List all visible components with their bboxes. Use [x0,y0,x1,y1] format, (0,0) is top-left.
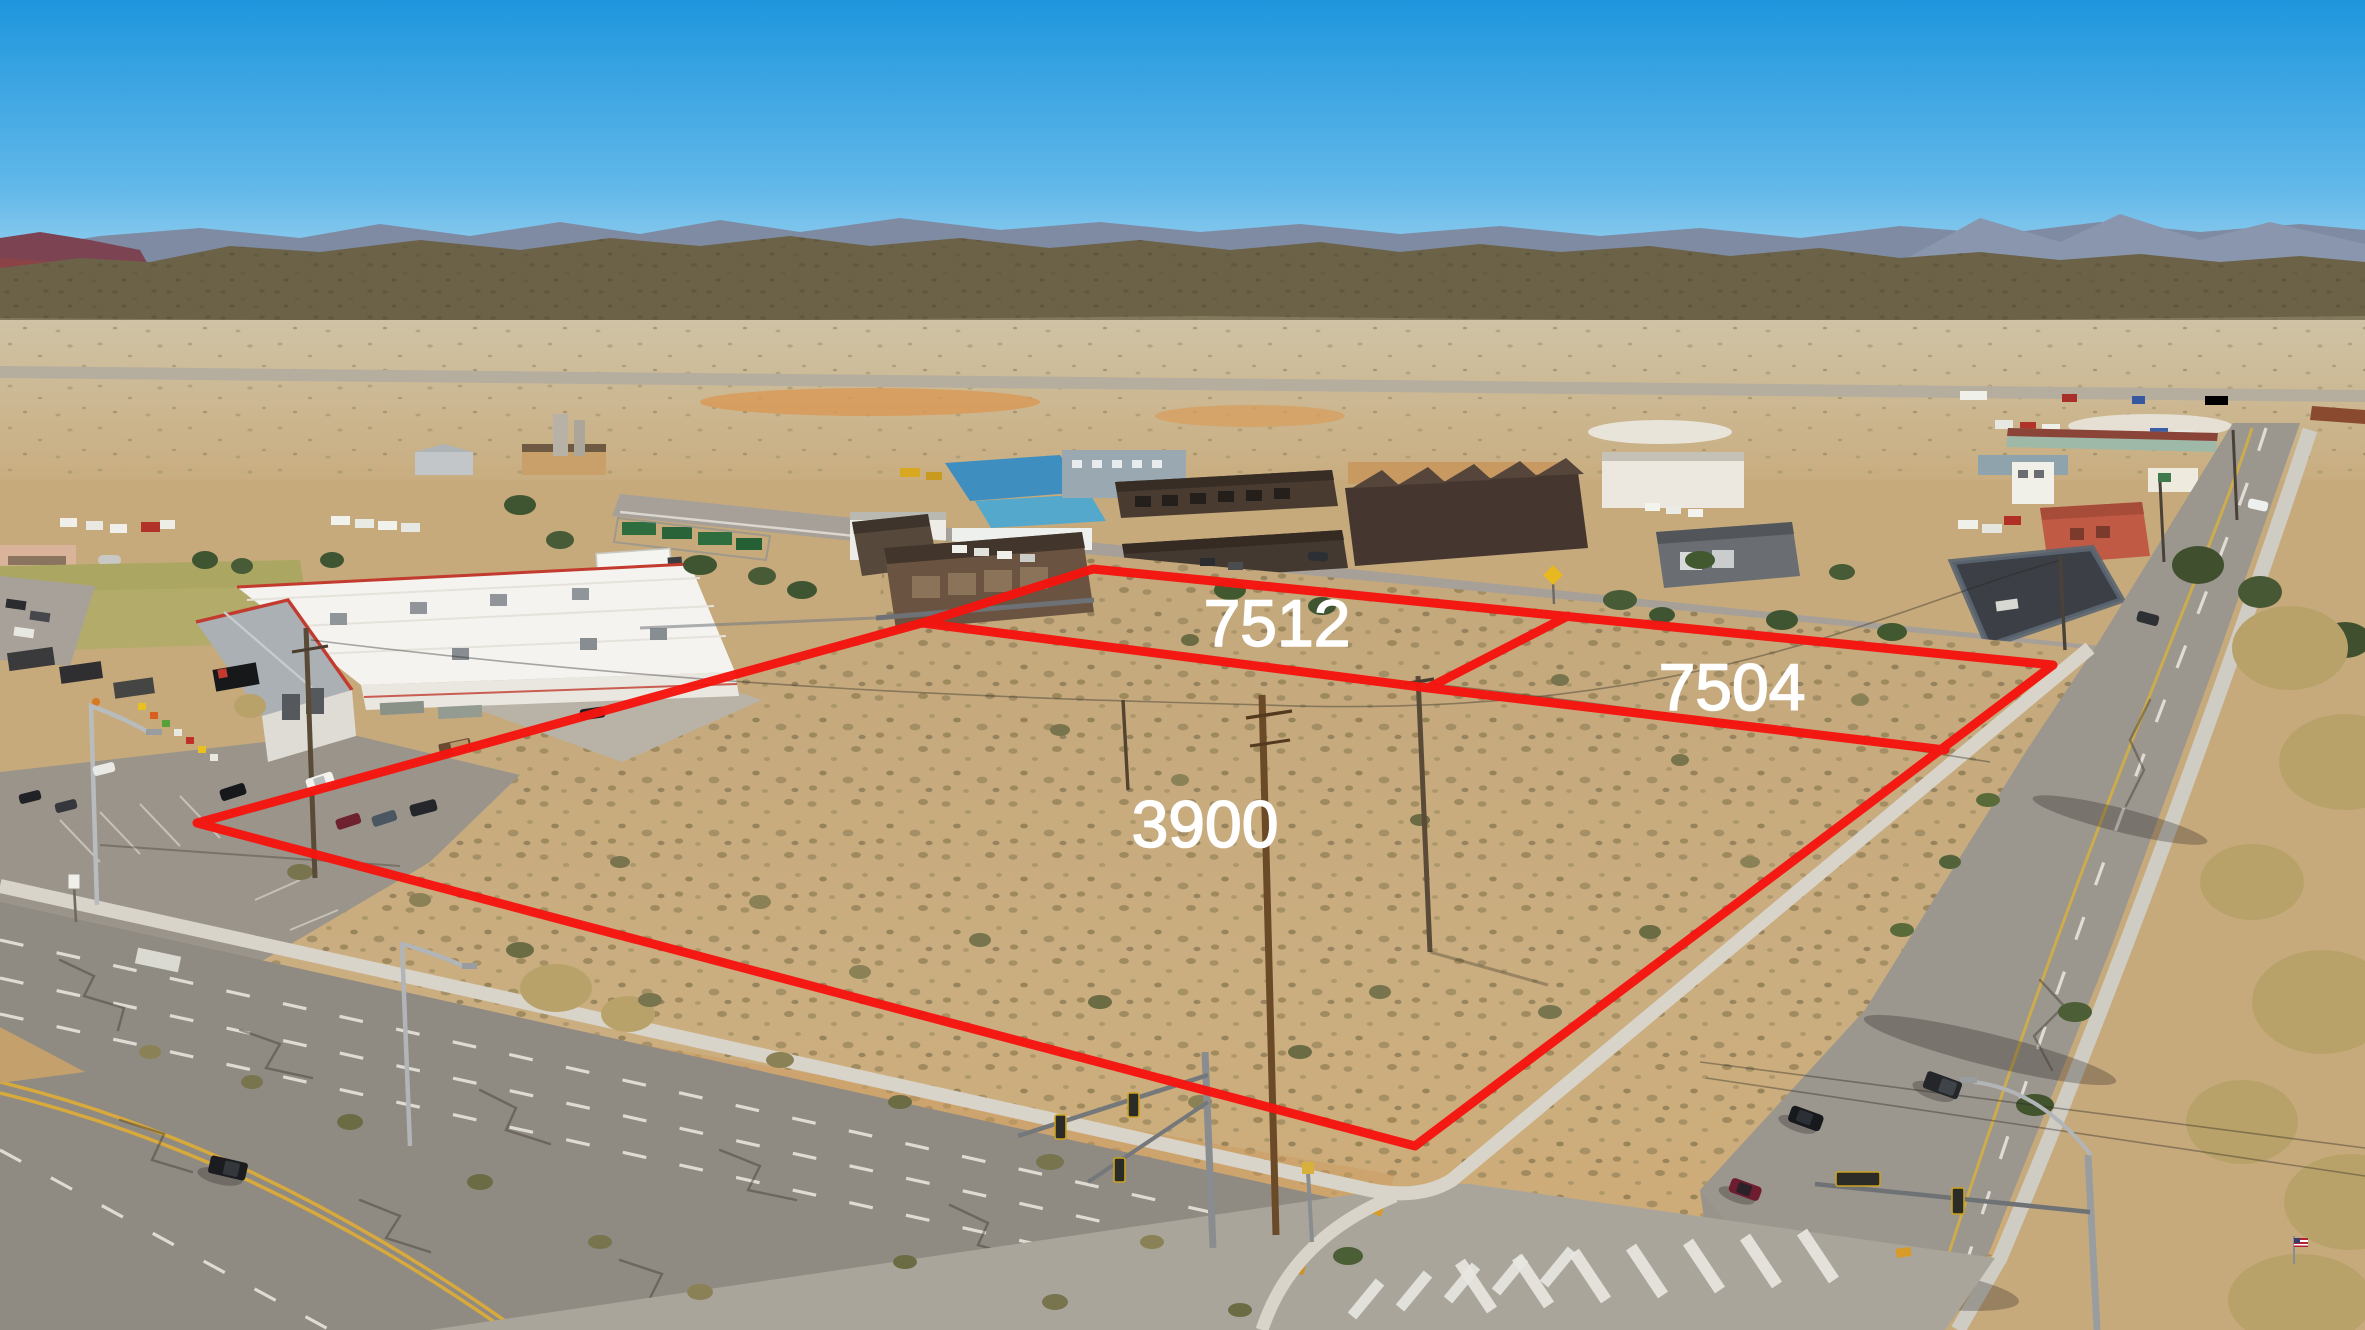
gravel-pile [1588,420,1732,444]
sawtooth-rowhouses [1345,458,1588,566]
airstream-trailer [98,555,121,565]
red-car [2004,516,2021,525]
parcel-label-7512: 7512 [1204,586,1351,660]
sign-building [2148,468,2198,492]
silo-tower [553,414,568,456]
aerial-photo: 7512 7504 3900 [0,0,2365,1330]
scene-canvas: 7512 7504 3900 [0,0,2365,1330]
metal-barn [415,452,473,475]
parcel-label-7504: 7504 [1659,650,1806,724]
awning [438,705,483,719]
awning [380,701,425,715]
parcel-label-3900: 3900 [1132,787,1279,861]
red-truck [141,522,160,532]
white-two-story [2012,462,2054,504]
sand-pit [700,388,1040,416]
white-building [1602,456,1744,508]
